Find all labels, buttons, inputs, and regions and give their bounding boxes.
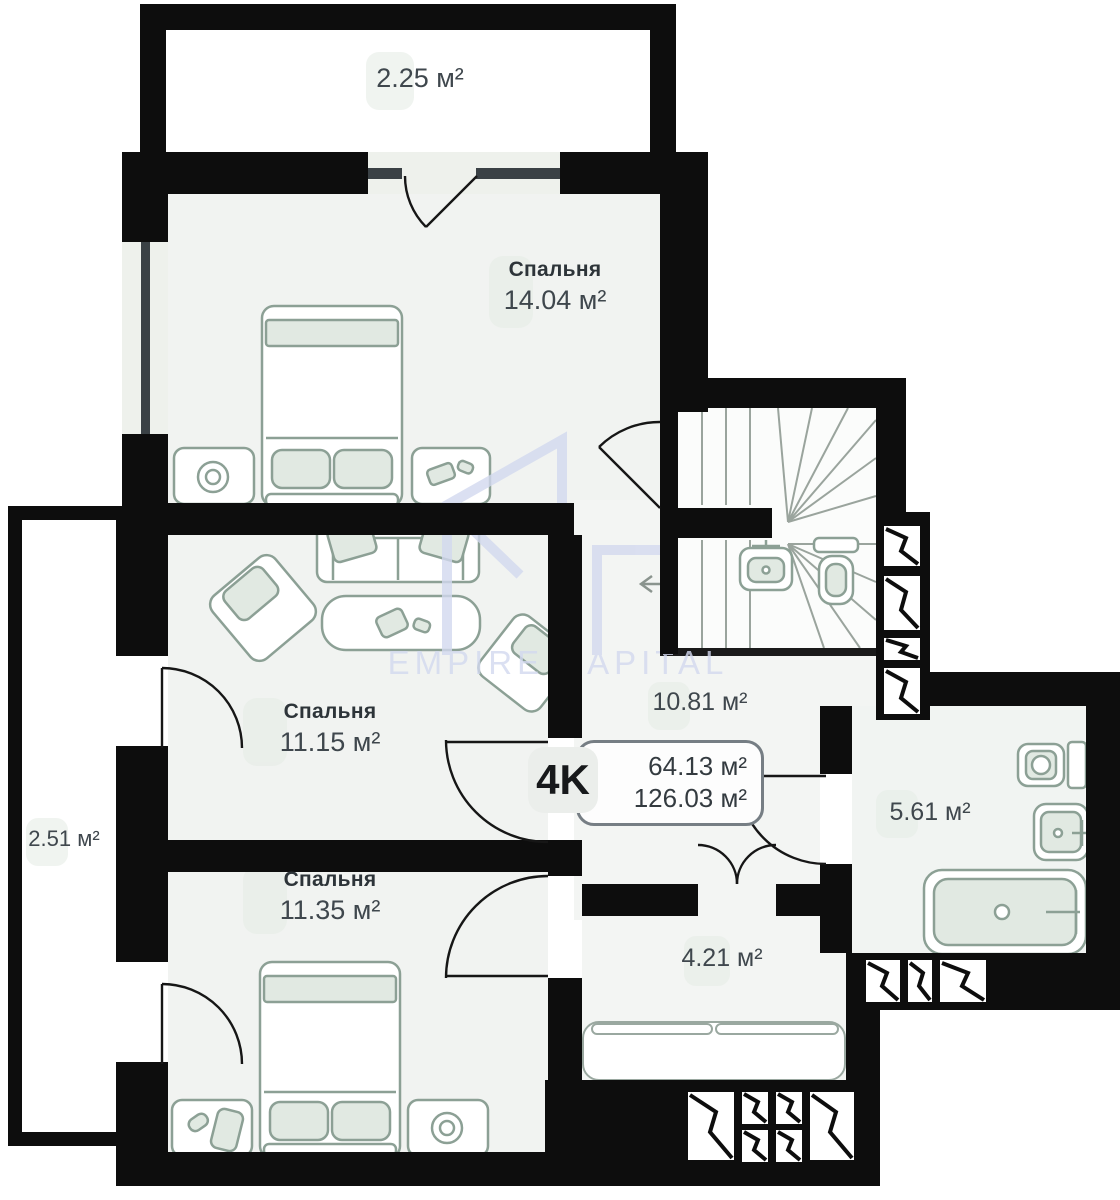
room-area: 5.61 м² [846,798,1014,827]
room-area: 14.04 м² [455,285,655,316]
room-label-entry: 4.21 м² [638,944,806,973]
sink-icon [1034,804,1088,860]
stair-landing [678,508,772,538]
room-area: 11.35 м² [228,895,432,926]
bench-icon [583,1022,845,1080]
room-label-balcony-top: 2.25 м² [330,60,510,94]
room-name: Спальня [228,868,432,892]
badge-areas: 64.13 м² 126.03 м² [576,740,764,826]
badge-area-living: 64.13 м² [648,751,747,783]
badge-type: 4K [528,747,598,813]
room-area: 10.81 м² [610,688,790,717]
room-area: 2.51 м² [8,826,120,851]
toilet-icon [814,538,858,604]
nightstand-icon [172,1100,252,1156]
room-name: Спальня [455,258,655,282]
sink-icon [740,540,792,590]
bed-icon [260,962,400,1158]
room-area: 4.21 м² [638,944,806,973]
room-area: 11.15 м² [228,727,432,758]
room-label-hall: 10.81 м² [610,688,790,717]
room-label-bathroom: 5.61 м² [846,798,1014,827]
floor-plan-drawing: EMPIRE CAPITAL [0,0,1120,1200]
coffee-table-icon [322,596,480,650]
nightstand-icon [412,448,490,504]
bathtub-icon [924,870,1086,954]
nightstand-icon [408,1100,488,1156]
apartment-badge: 64.13 м² 126.03 м² 4K [528,740,754,826]
room-area: 2.25 м² [330,63,510,94]
room-label-bedroom-bottom: Спальня 11.35 м² [228,868,432,926]
room-label-bedroom-top: Спальня 14.04 м² [455,258,655,316]
toilet-icon [1018,742,1086,788]
floor-plan: EMPIRE CAPITAL [0,0,1120,1200]
room-label-bedroom-middle: Спальня 11.15 м² [228,700,432,758]
room-label-balcony-left: 2.51 м² [8,826,120,851]
room-name: Спальня [228,700,432,724]
bed-icon [262,306,402,506]
badge-area-total: 126.03 м² [634,783,747,815]
nightstand-icon [174,448,254,504]
